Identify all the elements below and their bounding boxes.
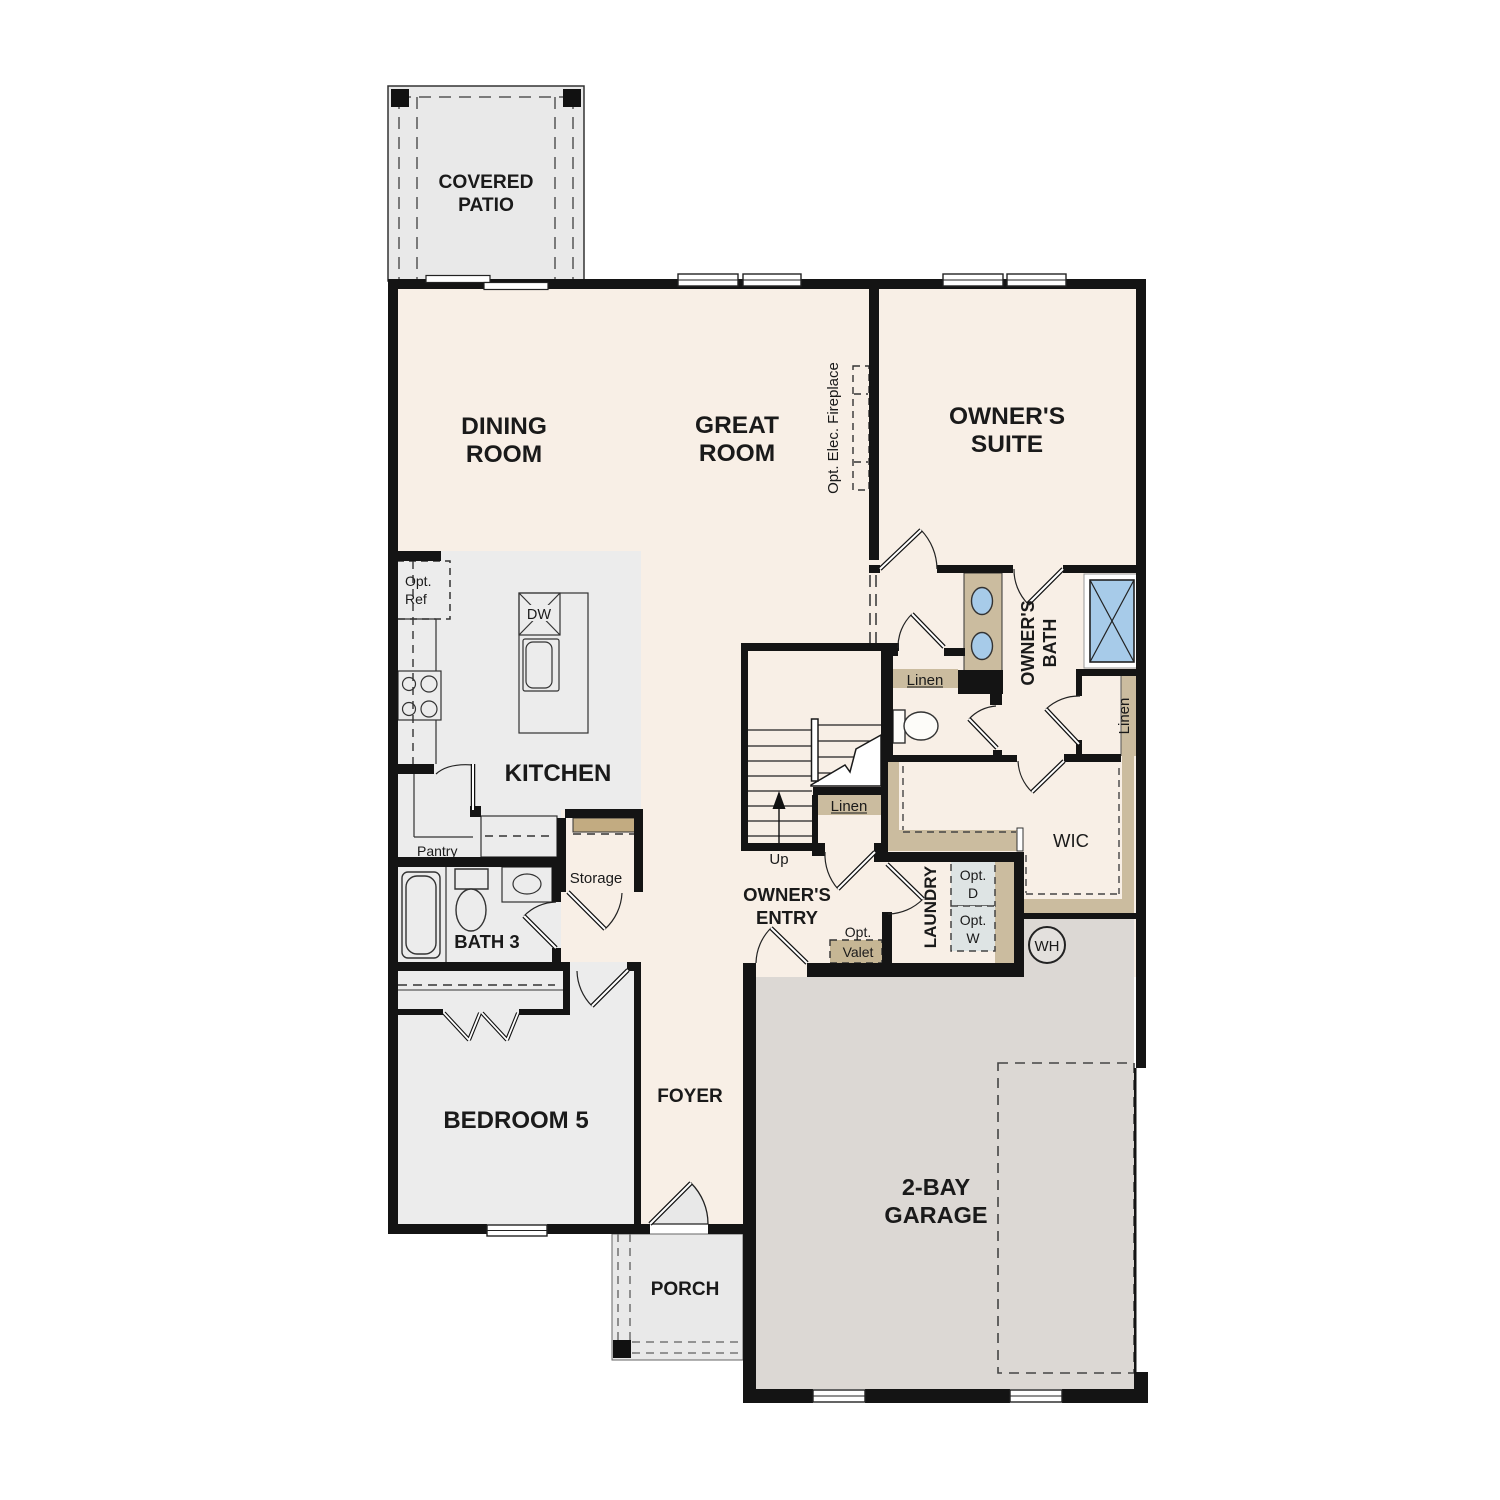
svg-text:PORCH: PORCH bbox=[651, 1279, 720, 1300]
svg-text:SUITE: SUITE bbox=[971, 431, 1043, 458]
svg-text:WH: WH bbox=[1035, 938, 1060, 955]
svg-text:Linen: Linen bbox=[831, 798, 868, 815]
svg-text:DW: DW bbox=[527, 607, 551, 623]
svg-text:W: W bbox=[966, 930, 980, 946]
svg-text:Valet: Valet bbox=[843, 944, 874, 960]
svg-text:OWNER'S: OWNER'S bbox=[1018, 600, 1038, 685]
svg-text:Opt. Elec. Fireplace: Opt. Elec. Fireplace bbox=[825, 362, 842, 494]
svg-text:D: D bbox=[968, 885, 978, 901]
svg-text:Linen: Linen bbox=[1116, 698, 1133, 735]
svg-text:BATH: BATH bbox=[1040, 619, 1060, 668]
svg-text:BATH 3: BATH 3 bbox=[454, 931, 519, 952]
svg-text:LAUNDRY: LAUNDRY bbox=[921, 865, 940, 948]
svg-text:Pantry: Pantry bbox=[417, 843, 457, 859]
svg-text:Ref: Ref bbox=[405, 591, 427, 607]
svg-text:ENTRY: ENTRY bbox=[756, 907, 819, 928]
svg-text:Opt.: Opt. bbox=[845, 924, 871, 940]
svg-text:Opt.: Opt. bbox=[960, 912, 986, 928]
svg-text:OWNER'S: OWNER'S bbox=[743, 884, 831, 905]
svg-text:Opt.: Opt. bbox=[405, 573, 431, 589]
svg-text:OWNER'S: OWNER'S bbox=[949, 403, 1065, 430]
svg-text:GREAT: GREAT bbox=[695, 412, 779, 439]
svg-text:DINING: DINING bbox=[461, 413, 547, 440]
svg-text:2-BAY: 2-BAY bbox=[902, 1174, 971, 1200]
svg-text:Opt.: Opt. bbox=[960, 867, 986, 883]
svg-text:Up: Up bbox=[769, 851, 788, 868]
svg-text:FOYER: FOYER bbox=[657, 1086, 723, 1107]
svg-text:Linen: Linen bbox=[907, 672, 944, 689]
svg-text:WIC: WIC bbox=[1053, 830, 1089, 851]
svg-text:GARAGE: GARAGE bbox=[884, 1202, 987, 1228]
svg-text:ROOM: ROOM bbox=[699, 440, 775, 467]
svg-text:Storage: Storage bbox=[570, 870, 623, 887]
svg-text:COVERED: COVERED bbox=[439, 172, 534, 193]
svg-text:KITCHEN: KITCHEN bbox=[505, 760, 612, 787]
svg-text:BEDROOM 5: BEDROOM 5 bbox=[443, 1107, 588, 1134]
svg-text:PATIO: PATIO bbox=[458, 195, 514, 216]
svg-text:ROOM: ROOM bbox=[466, 441, 542, 468]
